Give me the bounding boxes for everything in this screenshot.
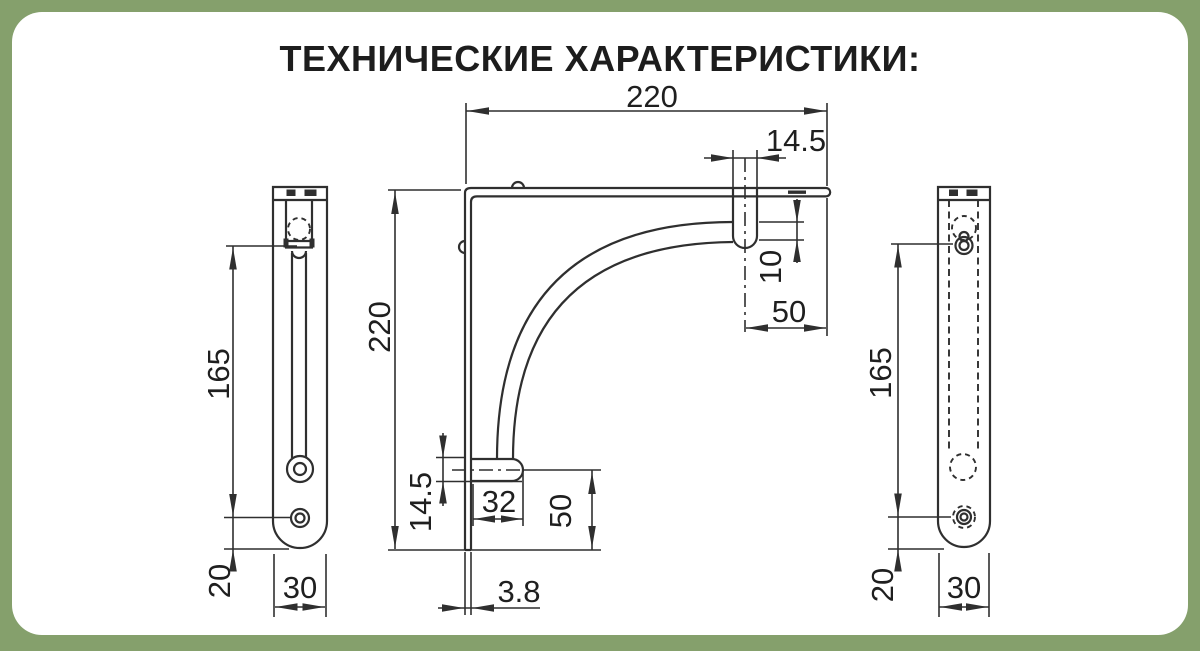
dim-left-20: 20: [202, 549, 289, 598]
right-cap-mark: [949, 190, 958, 197]
dim-label-left-30: 30: [283, 570, 317, 605]
left-plate-slot: [286, 200, 312, 458]
dim-right-165: 165: [863, 244, 953, 561]
bracket-l-profile: [465, 188, 830, 550]
right-bottom-screw: [953, 506, 975, 528]
curved-support: [497, 222, 733, 459]
dim-front-50-bottom: 50: [523, 470, 601, 550]
dim-label-top-tab-width: 14.5: [766, 123, 826, 158]
dim-label-tab-center-to-end: 50: [772, 294, 806, 329]
left-hook-detail: [284, 218, 315, 258]
dim-label-tab-center-to-base: 50: [543, 494, 578, 528]
left-hidden-hook-circle: [288, 218, 310, 240]
page-background: { "title": "ТЕХНИЧЕСКИЕ ХАРАКТЕРИСТИКИ:"…: [0, 0, 1200, 651]
dim-label-plate-height: 220: [362, 301, 397, 353]
dim-label-right-30: 30: [947, 570, 981, 605]
left-cap-mark: [305, 190, 317, 197]
dim-label-arm-length: 220: [626, 79, 678, 114]
dim-left-30: 30: [274, 554, 326, 617]
front-view: 220 14.5 10 50: [362, 79, 830, 615]
left-side-view: 165 20 30: [201, 187, 327, 617]
dim-label-bottom-tab-length: 32: [482, 484, 516, 519]
dim-label-right-165: 165: [863, 347, 898, 399]
right-cap-mark: [967, 190, 978, 197]
right-hidden-hole-circle: [950, 454, 976, 480]
technical-drawing: 165 20 30: [0, 0, 1200, 651]
dim-label-left-165: 165: [201, 348, 236, 400]
dim-label-left-20: 20: [202, 564, 237, 598]
dim-front-14.5-top: 14.5: [704, 123, 826, 187]
dim-right-20: 20: [865, 549, 944, 602]
dim-left-165: 165: [201, 246, 297, 561]
dim-label-tab-drop: 10: [753, 250, 788, 284]
dim-right-30: 30: [939, 553, 989, 617]
left-cap-mark: [287, 190, 296, 197]
left-upper-hole: [287, 456, 313, 482]
dim-label-metal-thickness: 3.8: [497, 574, 540, 609]
dim-label-right-20: 20: [865, 568, 900, 602]
dim-label-bottom-tab-height: 14.5: [403, 472, 438, 532]
dim-front-10: 10: [753, 199, 804, 284]
right-side-view: 165 20 30: [863, 187, 990, 617]
right-top-screw: [956, 232, 973, 254]
dim-front-3.8: 3.8: [438, 552, 541, 615]
left-lower-hole: [291, 509, 309, 527]
